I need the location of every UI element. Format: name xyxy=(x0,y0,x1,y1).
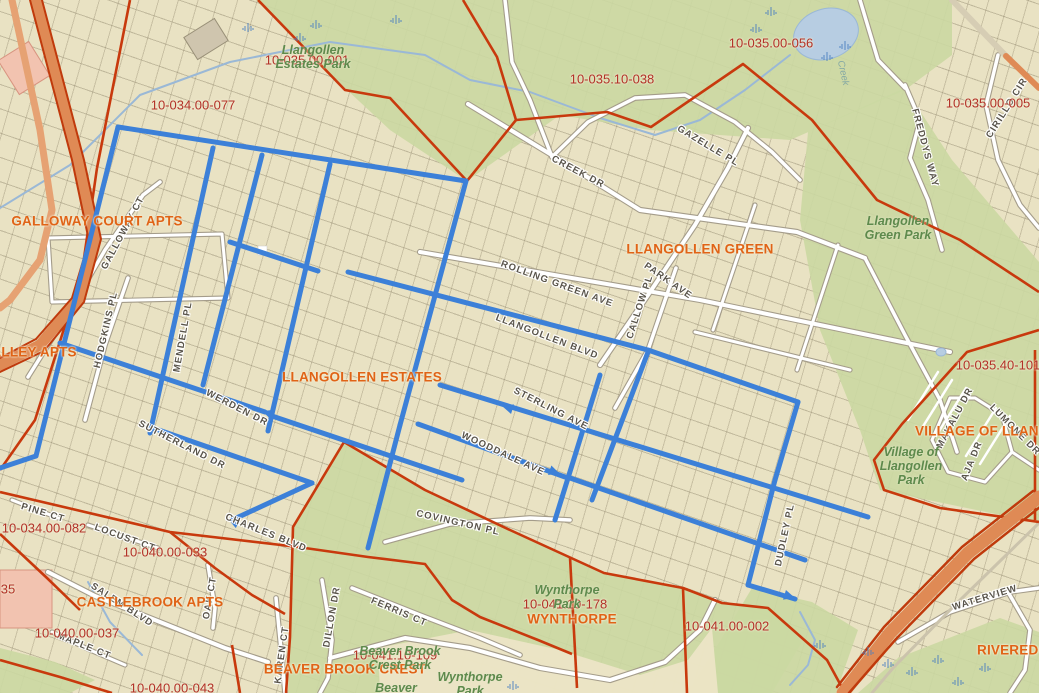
selected-route-segment[interactable] xyxy=(418,424,565,477)
creek-line xyxy=(88,582,142,655)
selected-route-segment[interactable] xyxy=(203,155,262,385)
building-footprint xyxy=(0,570,52,628)
wetland-symbol-icon xyxy=(243,23,253,32)
park-ave-road xyxy=(600,128,748,365)
selected-route-segment[interactable] xyxy=(150,427,312,483)
corner-road-gray xyxy=(952,0,1006,56)
selected-route-segment[interactable] xyxy=(230,242,318,271)
selected-route-segment[interactable] xyxy=(775,402,798,480)
selected-route-segment[interactable] xyxy=(648,350,798,402)
locust-ct-road xyxy=(88,525,158,548)
parcel-map-canvas[interactable]: CREEK DRGAZELLE PLPARK AVEROLLING GREEN … xyxy=(0,0,1039,693)
selected-route-segment[interactable] xyxy=(440,385,868,517)
map-feature-layers xyxy=(0,0,1039,693)
building-footprint xyxy=(184,18,228,59)
selected-route-segment[interactable] xyxy=(748,480,775,585)
maple-ct-road xyxy=(52,632,125,665)
corner-road-orange xyxy=(1006,56,1039,88)
selected-route-segment[interactable] xyxy=(570,478,805,560)
selected-route-segment[interactable] xyxy=(268,164,330,431)
castlebrook-green xyxy=(0,648,95,693)
pond xyxy=(936,348,946,356)
llangollen-green-park xyxy=(800,88,1039,523)
